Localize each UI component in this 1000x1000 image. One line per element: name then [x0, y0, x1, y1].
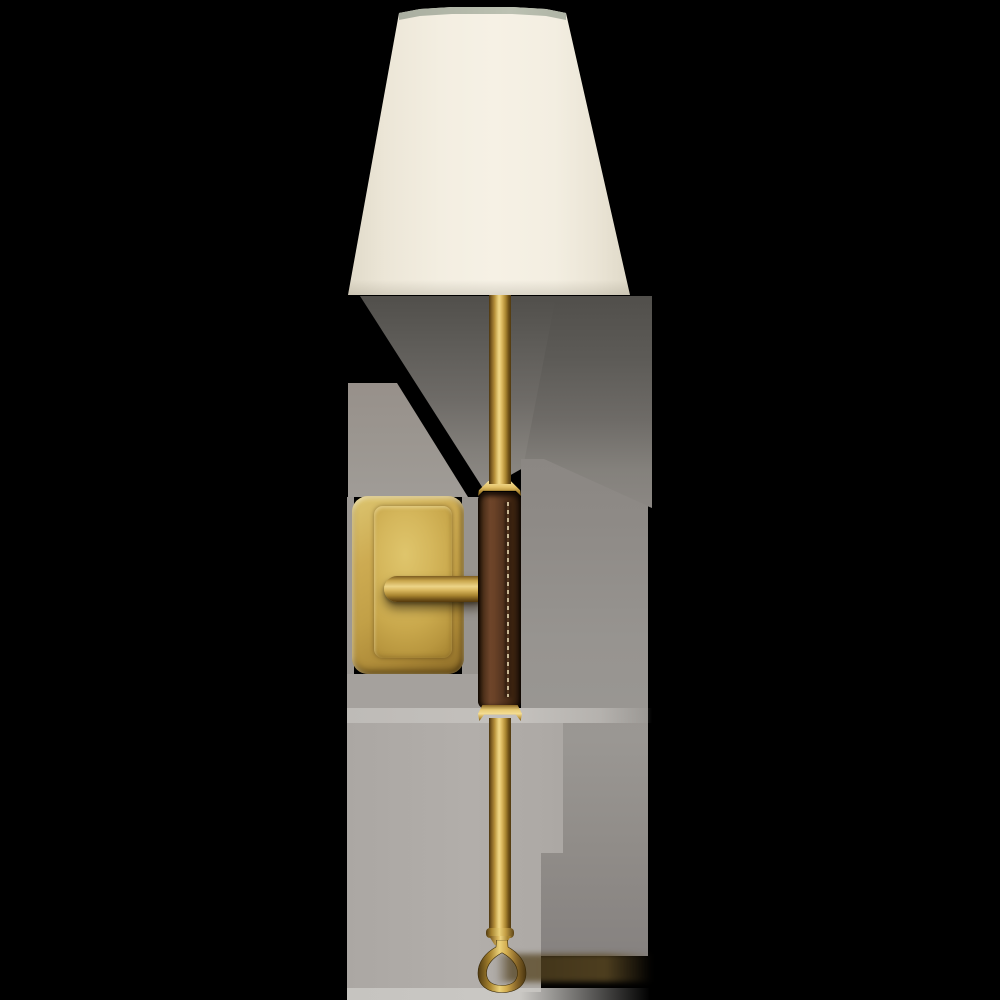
stem-lower — [489, 718, 511, 931]
finial-loop — [474, 940, 530, 993]
leather-grip — [478, 492, 521, 709]
product-image — [0, 0, 1000, 1000]
leather-stitch — [507, 502, 509, 697]
mounting-arm — [384, 576, 482, 602]
stem-upper — [489, 293, 511, 484]
